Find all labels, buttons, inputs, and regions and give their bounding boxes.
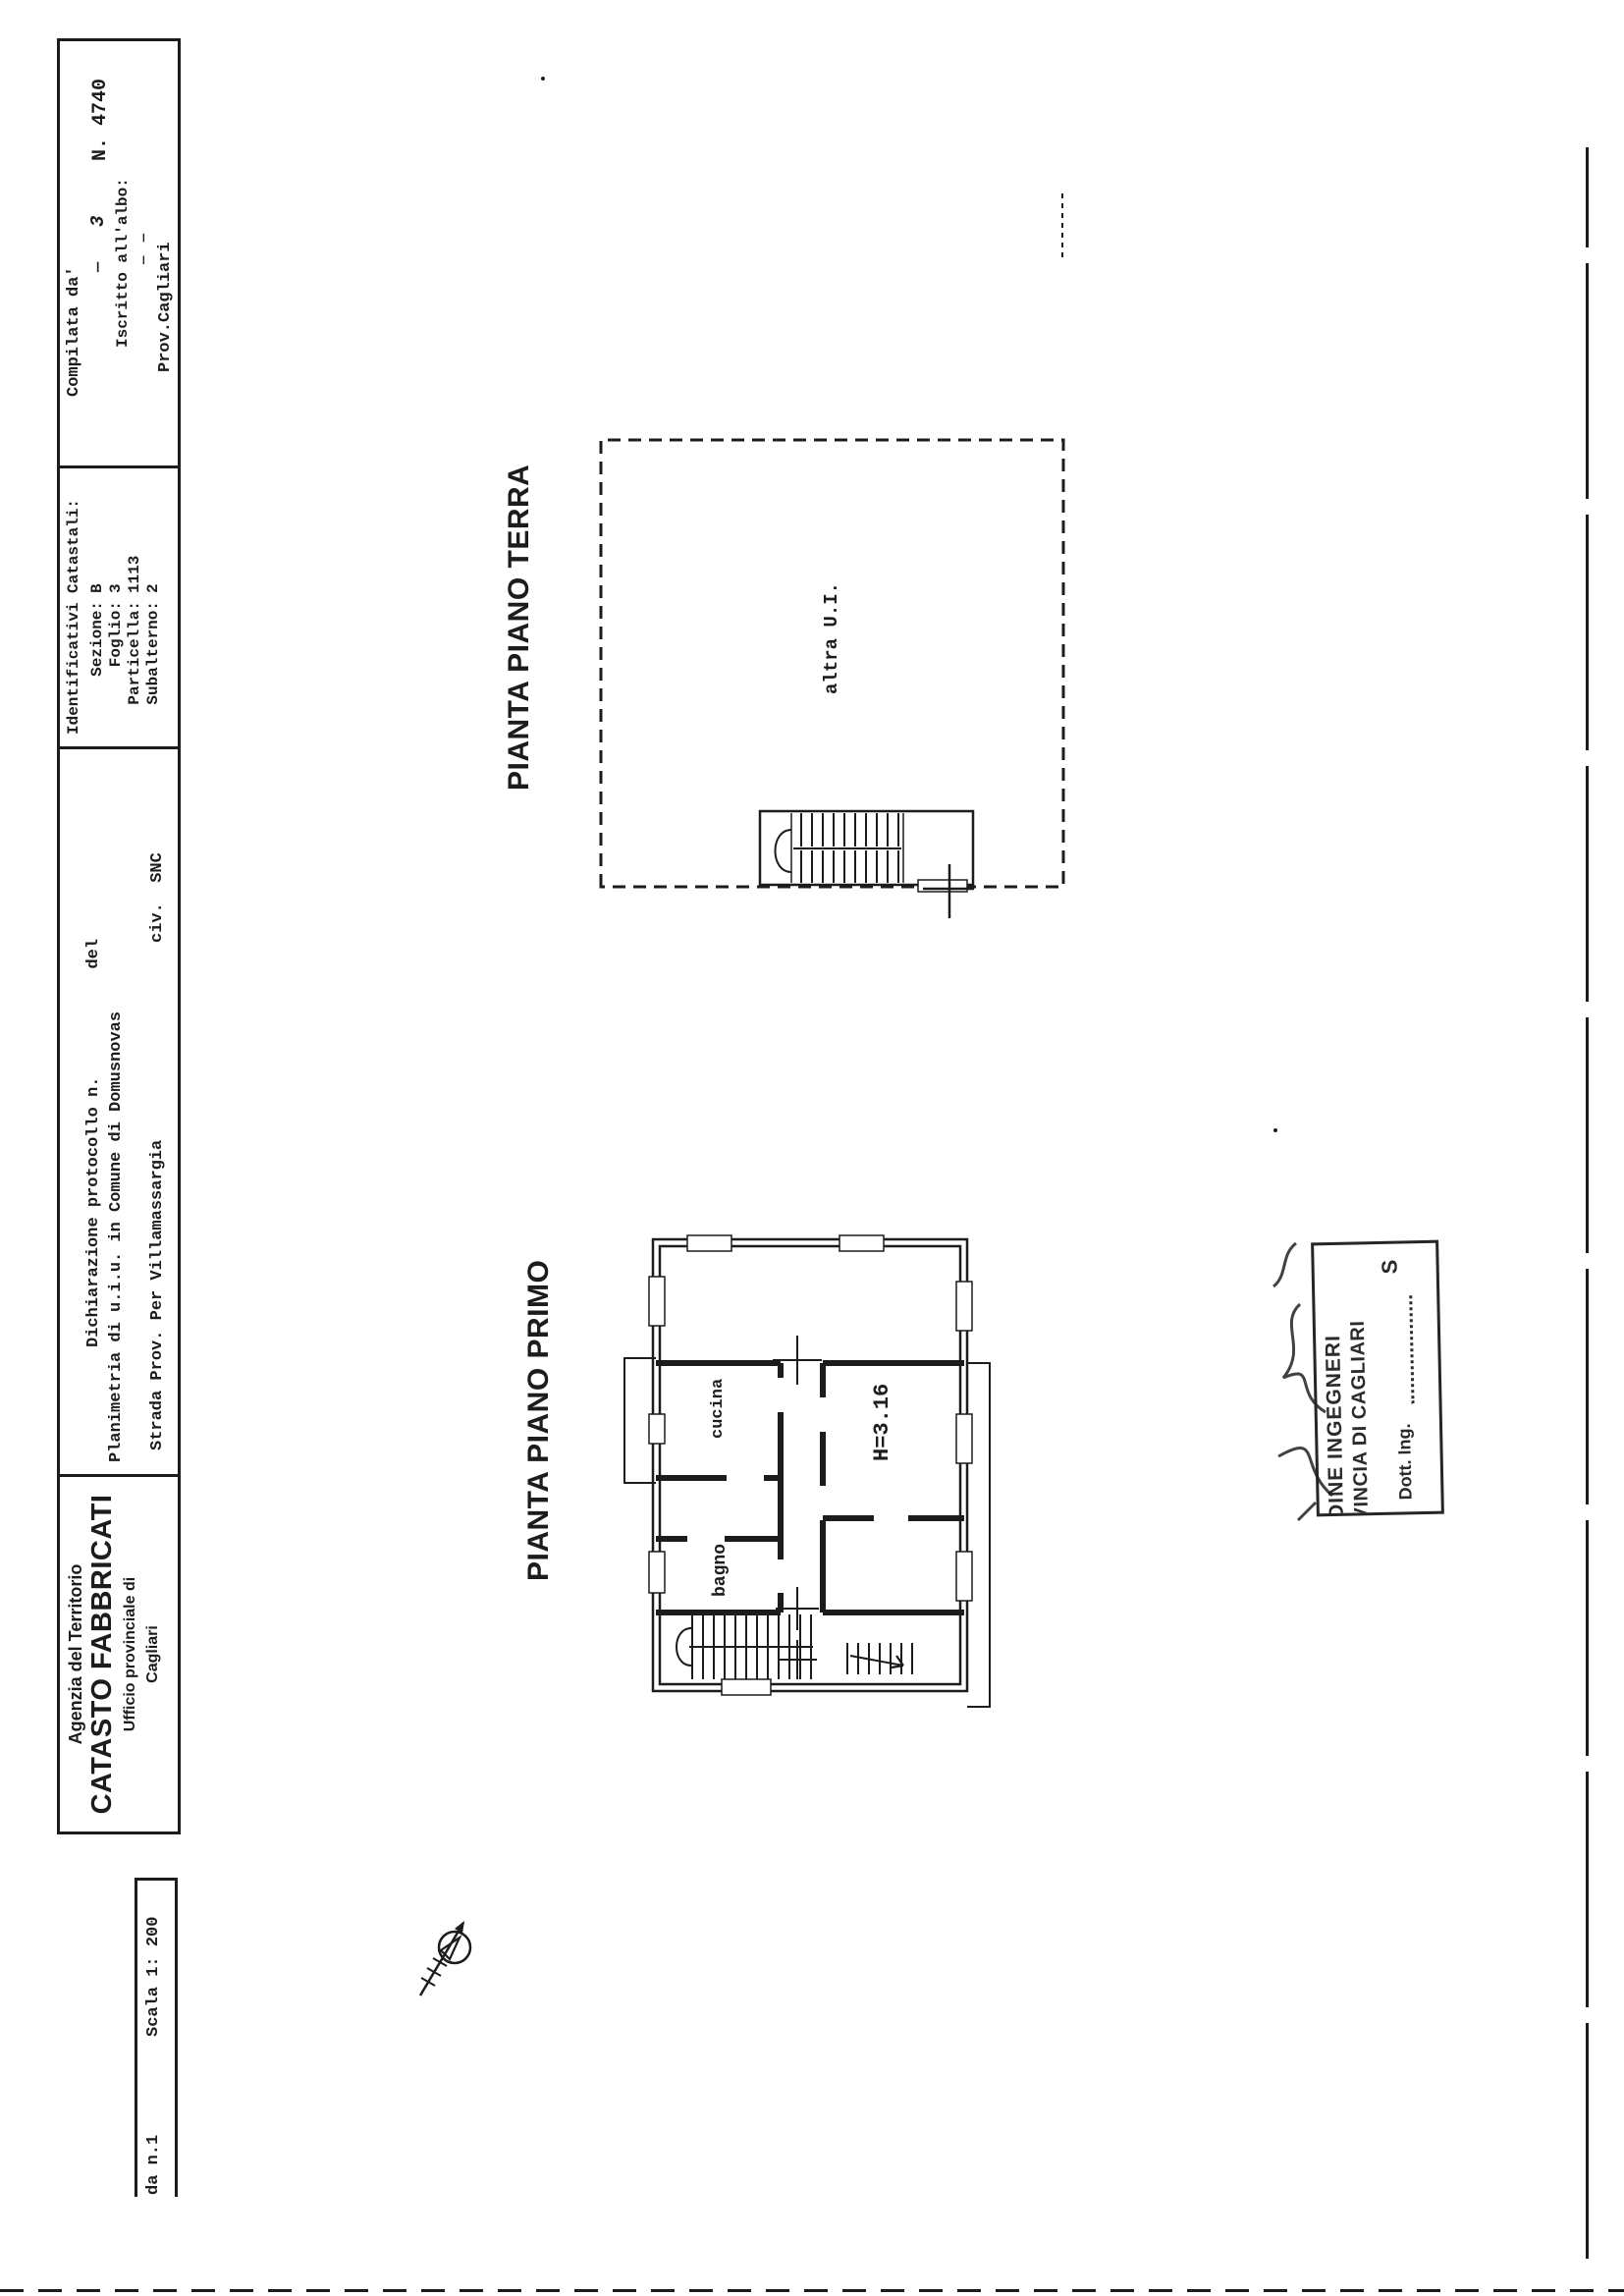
- stamp-dotted-line: [1409, 1295, 1414, 1403]
- province-label: Prov.Cagliari: [156, 242, 175, 372]
- header-cell-compiler: Compilata da' — 3 N. 4740 Iscritto all'a…: [60, 38, 178, 468]
- header-table: Agenzia del Territorio CATASTO FABBRICAT…: [57, 38, 181, 1834]
- register-number: N. 4740: [89, 79, 112, 161]
- field-label: Foglio:: [107, 601, 126, 717]
- fold-mark: [1061, 191, 1063, 257]
- header-cell-declaration: Dichiarazione protocollo n.del Planimetr…: [60, 746, 178, 1477]
- header-cell-cadastral-ids: Identificativi Catastali: Sezione: B Fog…: [60, 465, 178, 749]
- other-unit-label: altra U.I.: [821, 582, 842, 694]
- sheet-number: da n.1: [144, 2135, 163, 2195]
- civic-number: civ. SNC: [148, 852, 167, 943]
- north-arrow-icon: [403, 1903, 511, 2011]
- signature-scribbles: [1239, 1216, 1357, 1550]
- register-fill-dash: — —: [136, 231, 152, 264]
- cadastral-row-foglio: Foglio: 3: [107, 556, 126, 717]
- first-floor-plan-drawing: [609, 1216, 1021, 1726]
- scanned-cadastral-page: Agenzia del Territorio CATASTO FABBRICAT…: [0, 0, 1624, 2296]
- header-cell-agency: Agenzia del Territorio CATASTO FABBRICAT…: [60, 1477, 178, 1831]
- stairwell: [760, 811, 974, 918]
- room-height-label: H=3.16: [870, 1384, 894, 1461]
- fill-dash: —: [89, 262, 108, 272]
- scale-value: Scala 1: 200: [144, 1917, 163, 2037]
- cadastral-fields: Sezione: B Foglio: 3 Particella: 1113 Su…: [88, 556, 163, 717]
- ground-floor-title: PIANTA PIANO TERRA: [503, 465, 536, 791]
- scale-strip: da n.1 Scala 1: 200: [135, 1878, 178, 2197]
- page-bottom-dashed-edge: [0, 2289, 1624, 2292]
- field-value: B: [88, 583, 107, 593]
- stamp-line3: Dott. Ing.: [1394, 1423, 1417, 1500]
- landscape-canvas: Agenzia del Territorio CATASTO FABBRICAT…: [0, 0, 1624, 2296]
- scan-speck: [1273, 1128, 1277, 1132]
- bathroom-label: bagno: [711, 1544, 731, 1597]
- scan-speck: [541, 77, 545, 81]
- field-label: Subalterno:: [144, 601, 163, 717]
- street-row: Strada Prov. Per Villamassargia: [148, 1140, 167, 1450]
- field-label: Sezione:: [88, 601, 107, 717]
- handwritten-mark: 3: [87, 216, 109, 227]
- cadastral-title: Identificativi Catastali:: [65, 499, 82, 735]
- balconies: [624, 1358, 990, 1707]
- office-city: Cagliari: [144, 1477, 162, 1831]
- office-line: Ufficio provinciale di: [122, 1477, 139, 1831]
- page-right-edge-line: [1586, 147, 1589, 2259]
- field-value: 3: [107, 583, 126, 593]
- register-label: Iscritto all'albo:: [114, 178, 132, 348]
- cadastral-row-subalterno: Subalterno: 2: [144, 556, 163, 717]
- agency-name: Agenzia del Territorio: [66, 1477, 86, 1831]
- interior-walls: [656, 1363, 964, 1613]
- stamp-mark: S: [1377, 1259, 1402, 1274]
- catasto-title: CATASTO FABBRICATI: [86, 1477, 119, 1831]
- planimetry-row: Planimetria di u.i.u. in Comune di Domus…: [107, 1011, 126, 1462]
- cadastral-row-sezione: Sezione: B: [88, 556, 107, 717]
- field-value: 1113: [126, 556, 144, 593]
- kitchen-label: cucina: [709, 1379, 728, 1439]
- protocol-label: Dichiarazione protocollo n.: [84, 1077, 103, 1347]
- main-staircase: [677, 1614, 813, 1679]
- compiled-by-label: Compilata da': [65, 266, 83, 397]
- field-label: Particella:: [126, 601, 144, 717]
- cadastral-row-particella: Particella: 1113: [126, 556, 144, 717]
- protocol-del-label: del: [84, 939, 103, 969]
- field-value: 2: [144, 583, 163, 593]
- small-staircase: [847, 1643, 912, 1674]
- first-floor-title: PIANTA PIANO PRIMO: [522, 1260, 556, 1581]
